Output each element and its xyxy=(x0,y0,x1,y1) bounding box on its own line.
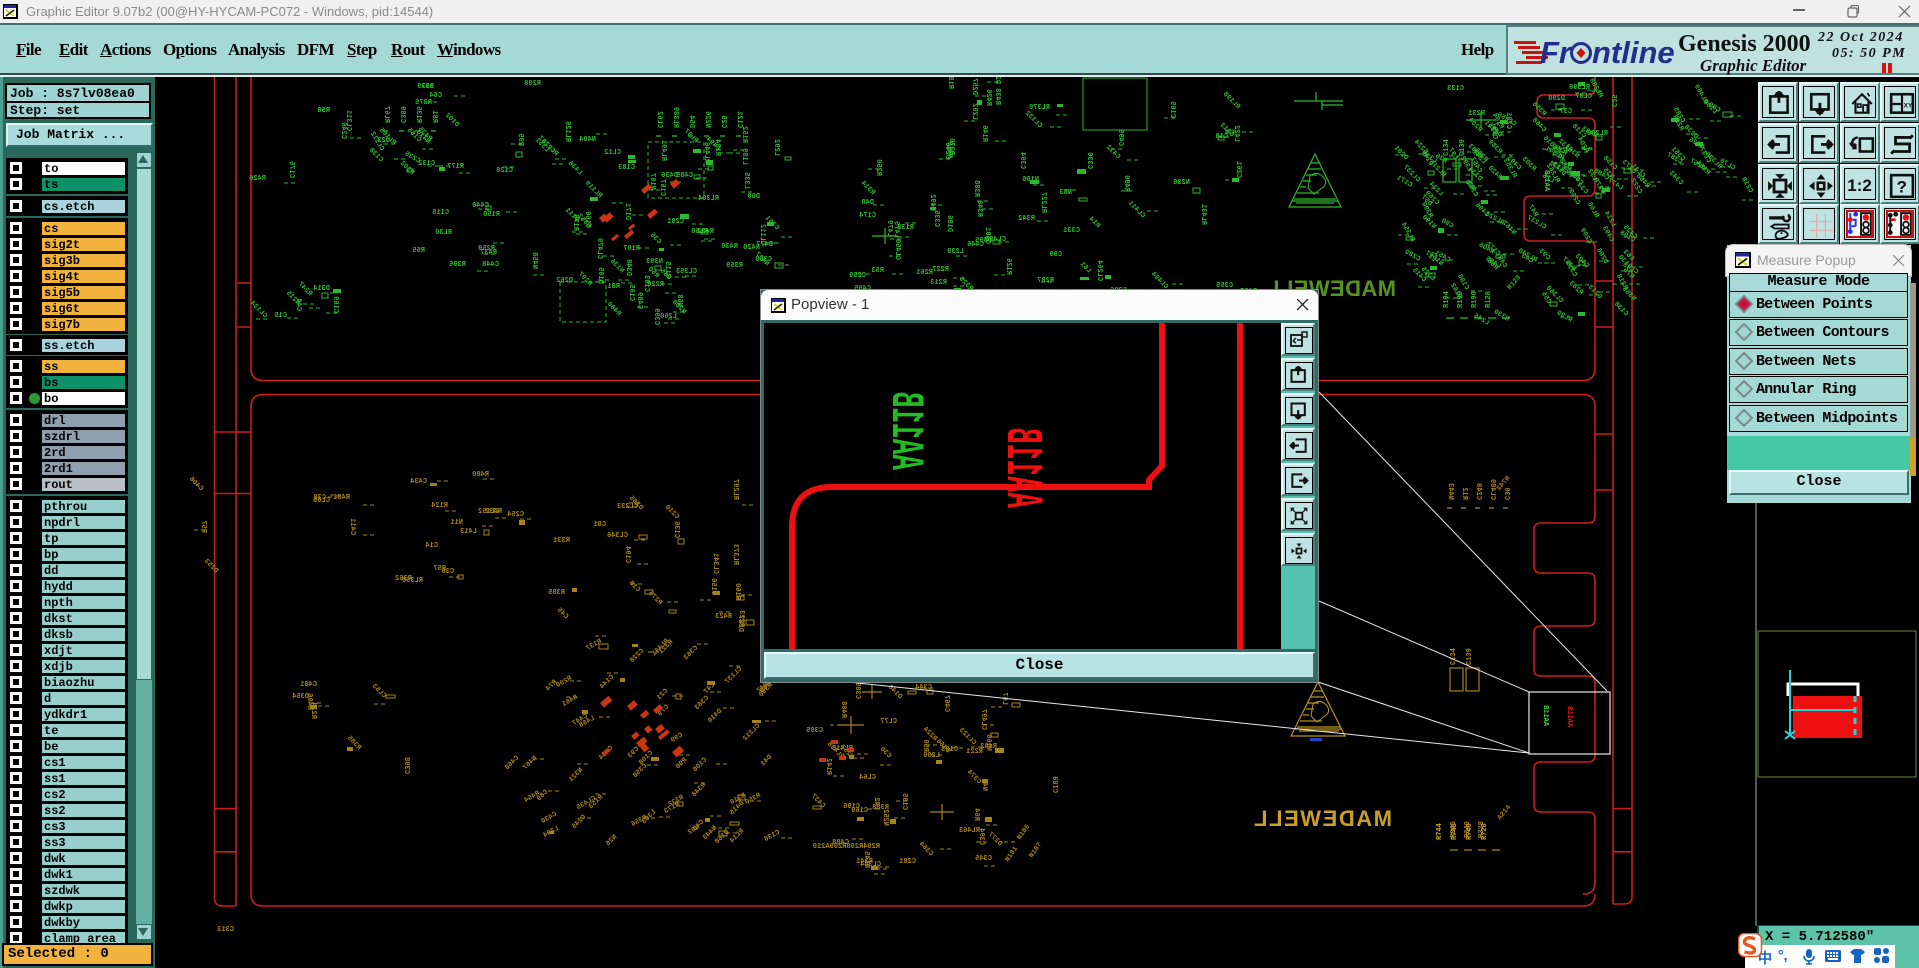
svg-text:L436: L436 xyxy=(566,160,584,178)
svg-text:XY: XY xyxy=(1904,102,1913,109)
svg-text:C37: C37 xyxy=(1559,108,1572,116)
svg-text:R437: R437 xyxy=(480,249,497,257)
svg-text:C93: C93 xyxy=(627,745,642,760)
svg-text:R47: R47 xyxy=(1526,204,1539,219)
svg-text:D277: D277 xyxy=(986,831,1004,849)
svg-text:R90: R90 xyxy=(675,756,690,771)
svg-text:R438: R438 xyxy=(993,88,1001,105)
svg-text:D262: D262 xyxy=(556,277,573,285)
svg-text:C144: C144 xyxy=(599,673,617,691)
svg-text:CL411: CL411 xyxy=(1126,200,1147,221)
svg-text:R107: R107 xyxy=(623,245,640,253)
svg-text:N393: N393 xyxy=(646,258,663,266)
svg-text:R359: R359 xyxy=(726,262,743,270)
svg-text:R432: R432 xyxy=(485,508,502,516)
svg-text:CL12: CL12 xyxy=(604,149,621,157)
svg-text:D48: D48 xyxy=(861,199,874,207)
svg-text:CL264: CL264 xyxy=(1095,260,1103,281)
svg-text:A214: A214 xyxy=(1496,804,1513,822)
svg-text:C196: C196 xyxy=(843,803,860,811)
svg-text:C134: C134 xyxy=(1450,648,1458,665)
svg-text:C281: C281 xyxy=(899,858,916,866)
svg-text:N187: N187 xyxy=(1028,841,1044,859)
svg-text:R124: R124 xyxy=(431,502,448,510)
svg-text:MADEWELL: MADEWELL xyxy=(1254,806,1392,831)
svg-text:C169: C169 xyxy=(331,296,339,313)
svg-text:R350: R350 xyxy=(744,792,763,807)
svg-text:C437: C437 xyxy=(809,793,827,811)
svg-text:C64: C64 xyxy=(429,92,442,100)
svg-text:R270: R270 xyxy=(947,138,955,155)
svg-text:R57: R57 xyxy=(199,520,207,533)
svg-text:N339: N339 xyxy=(1492,308,1511,323)
svg-text:R81: R81 xyxy=(430,110,438,123)
svg-text:R135: R135 xyxy=(414,106,422,123)
svg-text:R194: R194 xyxy=(1443,291,1451,308)
svg-text:N458: N458 xyxy=(530,252,538,269)
svg-text:C25: C25 xyxy=(719,115,727,128)
svg-text:C165: C165 xyxy=(1168,101,1176,118)
svg-text:C201: C201 xyxy=(1504,112,1512,129)
svg-text:R227: R227 xyxy=(932,266,949,274)
svg-text:C313: C313 xyxy=(217,926,234,934)
svg-text:C315: C315 xyxy=(1563,260,1578,279)
svg-text:RL66: RL66 xyxy=(1585,201,1600,220)
svg-text:N68: N68 xyxy=(675,294,683,307)
svg-text:C496: C496 xyxy=(1473,202,1491,220)
svg-text:CL311: CL311 xyxy=(344,110,352,131)
svg-text:CL69: CL69 xyxy=(313,497,330,505)
svg-text:D410: D410 xyxy=(707,707,725,725)
svg-text:Fr: Fr xyxy=(1540,35,1573,70)
svg-text:ntline: ntline xyxy=(1592,35,1675,70)
svg-text:R426: R426 xyxy=(984,89,992,106)
svg-text:RL259: RL259 xyxy=(1587,130,1608,138)
svg-text:R126: R126 xyxy=(1004,258,1012,275)
svg-text:D436: D436 xyxy=(661,172,678,180)
svg-text:L351: L351 xyxy=(533,137,551,155)
svg-text:C434: C434 xyxy=(410,478,427,486)
svg-text:R204R208R209A210: R204R208R209A210 xyxy=(813,843,880,851)
svg-text:R247: R247 xyxy=(296,281,314,299)
svg-text:N186: N186 xyxy=(1016,823,1032,841)
svg-text:C209: C209 xyxy=(1578,227,1593,246)
svg-text:R195: R195 xyxy=(1457,291,1465,308)
svg-text:N443: N443 xyxy=(1446,483,1454,500)
svg-text:D257: D257 xyxy=(970,78,978,95)
svg-text:R64: R64 xyxy=(972,808,980,821)
svg-text:C481: C481 xyxy=(300,681,317,689)
svg-text:R261: R261 xyxy=(916,269,933,277)
svg-text:CL450: CL450 xyxy=(893,239,901,260)
svg-text:N38: N38 xyxy=(1463,179,1478,194)
svg-text:C363: C363 xyxy=(683,644,701,662)
svg-text:R207: R207 xyxy=(1037,277,1054,285)
svg-text:AA11B: AA11B xyxy=(1542,169,1550,191)
svg-text:C14: C14 xyxy=(425,542,438,550)
svg-text:R74: R74 xyxy=(545,678,560,693)
svg-text:N226: N226 xyxy=(703,111,711,128)
svg-text:R481: R481 xyxy=(333,494,350,502)
svg-text:C330: C330 xyxy=(1085,152,1093,169)
svg-text:?: ? xyxy=(1897,179,1907,198)
svg-text:U23: U23 xyxy=(377,137,390,145)
svg-text:RL491: RL491 xyxy=(659,140,667,161)
svg-text:R745: R745 xyxy=(1451,823,1459,840)
svg-text:C495: C495 xyxy=(1116,129,1124,146)
svg-text:R241: R241 xyxy=(856,858,873,866)
svg-text:RL431: RL431 xyxy=(1199,204,1207,225)
svg-text:C139: C139 xyxy=(1466,648,1474,665)
svg-text:CL341: CL341 xyxy=(711,553,719,574)
svg-text:RL30: RL30 xyxy=(435,229,452,237)
svg-text:CL62: CL62 xyxy=(655,111,663,128)
svg-text:R303: R303 xyxy=(1520,156,1538,174)
svg-text:C254: C254 xyxy=(507,511,524,519)
svg-text:C468: C468 xyxy=(1530,117,1548,135)
svg-text:R348: R348 xyxy=(691,781,709,799)
svg-text:R408: R408 xyxy=(839,701,847,718)
svg-text:L206: L206 xyxy=(923,752,940,760)
svg-text:CL497: CL497 xyxy=(979,709,987,730)
svg-text:R208: R208 xyxy=(524,80,541,88)
svg-text:C468: C468 xyxy=(504,754,522,772)
svg-text:L479: L479 xyxy=(885,220,893,237)
svg-text:D54: D54 xyxy=(687,115,695,128)
svg-text:R342: R342 xyxy=(1018,215,1035,223)
svg-text:N494: N494 xyxy=(579,136,596,144)
svg-text:R314: R314 xyxy=(859,180,877,198)
svg-text:CL353: CL353 xyxy=(676,268,697,276)
svg-text:R422: R422 xyxy=(697,228,714,236)
svg-text:R173: R173 xyxy=(663,801,682,816)
svg-text:C343: C343 xyxy=(1667,170,1685,188)
svg-text:RL14: RL14 xyxy=(729,827,747,845)
svg-text:L214: L214 xyxy=(1602,210,1617,229)
svg-text:C185: C185 xyxy=(900,793,908,810)
svg-text:C45: C45 xyxy=(555,607,570,622)
svg-text:AA11B: AA11B xyxy=(1541,704,1549,726)
svg-text:C374: C374 xyxy=(965,769,983,787)
svg-text:C174: C174 xyxy=(859,212,876,220)
svg-text:L239: L239 xyxy=(947,248,964,256)
svg-text:RL126: RL126 xyxy=(563,121,571,142)
svg-text:R53: R53 xyxy=(871,267,884,275)
svg-text:R81: R81 xyxy=(607,283,620,291)
svg-text:C448: C448 xyxy=(482,261,499,269)
svg-text:R426: R426 xyxy=(249,175,266,183)
svg-text:R150: R150 xyxy=(483,211,500,219)
svg-text:C331: C331 xyxy=(1063,227,1080,235)
svg-text:C411: C411 xyxy=(348,518,356,535)
svg-text:C15: C15 xyxy=(274,312,287,320)
svg-text:R348: R348 xyxy=(975,200,983,217)
svg-text:R490: R490 xyxy=(1122,175,1130,192)
svg-text:CL132: CL132 xyxy=(1023,110,1044,131)
svg-text:R480: R480 xyxy=(605,301,623,319)
svg-text:CL212: CL212 xyxy=(742,722,763,743)
svg-text:R12: R12 xyxy=(1460,487,1468,500)
svg-text:C261: C261 xyxy=(1234,161,1242,178)
svg-text:CL137: CL137 xyxy=(724,665,745,686)
svg-text:C134: C134 xyxy=(1443,139,1451,156)
svg-text:RL304: RL304 xyxy=(698,195,719,203)
svg-text:C406: C406 xyxy=(187,476,205,494)
svg-text:R224: R224 xyxy=(309,702,317,719)
svg-text:R388: R388 xyxy=(972,180,980,197)
svg-text:N356: N356 xyxy=(630,814,649,829)
svg-text:C248: C248 xyxy=(1474,483,1482,500)
svg-text:C136: C136 xyxy=(763,829,782,844)
svg-text:C93: C93 xyxy=(1537,248,1552,263)
svg-text:C383: C383 xyxy=(694,694,712,712)
svg-text:C304: C304 xyxy=(1018,152,1026,169)
svg-text:C289: C289 xyxy=(1403,248,1422,263)
svg-text:C398: C398 xyxy=(402,757,410,774)
svg-text:C218: C218 xyxy=(1739,176,1754,195)
svg-text:C355: C355 xyxy=(1216,282,1233,290)
svg-text:C194: C194 xyxy=(623,546,631,563)
svg-text:C99: C99 xyxy=(670,732,685,745)
svg-text:D171: D171 xyxy=(623,203,631,220)
svg-text:R129: R129 xyxy=(1506,274,1523,292)
svg-text:R423: R423 xyxy=(715,613,732,621)
svg-text:AA11B: AA11B xyxy=(1565,705,1573,727)
svg-text:D348: D348 xyxy=(624,259,632,276)
svg-text:L413: L413 xyxy=(460,528,477,536)
svg-text:R213: R213 xyxy=(930,279,947,287)
svg-text:RL67: RL67 xyxy=(382,106,390,123)
svg-text:C245: C245 xyxy=(571,813,589,831)
svg-text:C175: C175 xyxy=(287,161,295,178)
svg-text:R461: R461 xyxy=(561,694,580,709)
svg-text:C430: C430 xyxy=(540,811,559,826)
svg-text:C189: C189 xyxy=(1053,776,1061,793)
svg-text:C305: C305 xyxy=(806,727,823,735)
svg-text:R190: R190 xyxy=(1471,291,1479,308)
svg-text:CL346: CL346 xyxy=(607,532,628,540)
svg-text:C18: C18 xyxy=(627,580,642,595)
svg-text:R223: R223 xyxy=(737,610,745,627)
svg-text:R50: R50 xyxy=(317,107,330,115)
svg-text:D102: D102 xyxy=(443,112,461,130)
svg-text:L335: L335 xyxy=(742,172,750,189)
svg-text:L292: L292 xyxy=(772,139,780,156)
svg-text:L61: L61 xyxy=(1078,261,1093,276)
svg-text:CL112: CL112 xyxy=(758,224,766,245)
svg-text:CL123: CL123 xyxy=(957,727,978,748)
svg-text:C121: C121 xyxy=(735,111,743,128)
svg-text:C201: C201 xyxy=(667,218,684,226)
svg-text:RL469: RL469 xyxy=(1692,83,1709,105)
svg-text:L260: L260 xyxy=(660,313,677,321)
svg-text:R744: R744 xyxy=(1436,823,1444,840)
svg-text:R297: R297 xyxy=(576,271,594,289)
svg-text:R375: R375 xyxy=(415,99,432,107)
svg-text:R331: R331 xyxy=(553,537,570,545)
svg-text:D201: D201 xyxy=(1392,145,1410,163)
svg-text:R480: R480 xyxy=(472,471,489,479)
svg-text:R385: R385 xyxy=(548,589,565,597)
svg-text:C25: C25 xyxy=(1609,94,1617,107)
svg-text:C128: C128 xyxy=(496,167,513,175)
svg-text:R50: R50 xyxy=(921,739,929,752)
svg-text:C36: C36 xyxy=(441,568,454,576)
svg-text:R65: R65 xyxy=(412,247,425,255)
svg-text:RL227: RL227 xyxy=(1039,192,1047,213)
svg-text:D105: D105 xyxy=(596,267,604,284)
svg-text:C228: C228 xyxy=(629,647,647,665)
svg-text:R389: R389 xyxy=(1486,139,1504,157)
svg-text:C105: C105 xyxy=(627,284,635,301)
svg-text:R430: R430 xyxy=(721,243,738,251)
svg-text:CL470: CL470 xyxy=(595,238,603,259)
svg-text:R137: R137 xyxy=(585,638,604,653)
svg-text:C136: C136 xyxy=(672,521,680,538)
svg-text:AA11B: AA11B xyxy=(992,428,1050,508)
svg-text:R177: R177 xyxy=(447,163,464,171)
svg-text:N321: N321 xyxy=(568,766,586,784)
svg-text:C138: C138 xyxy=(1612,301,1630,319)
svg-text:RL370: RL370 xyxy=(1029,104,1050,112)
svg-text:R728: R728 xyxy=(1481,823,1489,840)
svg-text:D60: D60 xyxy=(747,193,760,201)
svg-text:D41: D41 xyxy=(760,753,775,768)
svg-text:R283: R283 xyxy=(1567,280,1585,298)
svg-text:C399: C399 xyxy=(652,308,660,325)
svg-text:R128: R128 xyxy=(1485,291,1493,308)
svg-text:D206: D206 xyxy=(1594,247,1609,266)
svg-text:R250: R250 xyxy=(874,159,882,176)
svg-text:N230: N230 xyxy=(1173,179,1190,187)
svg-text:C409: C409 xyxy=(635,292,643,309)
svg-text:N136: N136 xyxy=(608,258,626,276)
svg-text:C389: C389 xyxy=(398,106,406,123)
svg-text:N160: N160 xyxy=(984,734,992,751)
svg-text:C467: C467 xyxy=(942,695,950,712)
svg-text:R231: R231 xyxy=(1468,110,1485,118)
svg-text:R454: R454 xyxy=(523,790,542,805)
svg-text:C133: C133 xyxy=(1447,85,1464,93)
svg-text:N26: N26 xyxy=(605,833,620,848)
svg-text:R221: R221 xyxy=(966,748,983,756)
svg-text:R152: R152 xyxy=(740,126,748,143)
svg-text:CL53: CL53 xyxy=(370,683,388,701)
svg-text:RL389: RL389 xyxy=(671,107,679,128)
svg-text:C21: C21 xyxy=(656,687,671,702)
svg-text:CL494: CL494 xyxy=(1149,271,1170,292)
svg-text:R115: R115 xyxy=(663,261,671,278)
svg-text:R226: R226 xyxy=(647,281,664,289)
svg-text:C35: C35 xyxy=(648,232,663,247)
svg-text:CL87: CL87 xyxy=(1575,93,1592,101)
svg-text:C30: C30 xyxy=(878,746,893,761)
svg-text:C106: C106 xyxy=(692,756,710,774)
svg-text:C401: C401 xyxy=(983,227,991,244)
svg-text:L189: L189 xyxy=(740,148,748,165)
svg-text:RL198: RL198 xyxy=(1221,91,1242,112)
svg-text:R14: R14 xyxy=(1087,216,1102,231)
svg-text:N181: N181 xyxy=(1004,845,1020,863)
svg-text:C259: C259 xyxy=(849,272,866,280)
svg-text:D314: D314 xyxy=(313,285,330,293)
svg-text:C364: C364 xyxy=(917,841,935,859)
svg-text:D186: D186 xyxy=(945,215,953,232)
svg-text:C99: C99 xyxy=(1049,251,1062,259)
svg-text:R740: R740 xyxy=(1466,823,1474,840)
svg-text:C44: C44 xyxy=(294,298,302,311)
svg-text:C139: C139 xyxy=(1459,139,1467,156)
svg-text:D298: D298 xyxy=(1548,95,1565,103)
svg-text:RL297: RL297 xyxy=(731,479,739,500)
svg-text:RL446: RL446 xyxy=(702,142,710,163)
svg-text:C167: C167 xyxy=(658,179,666,196)
svg-text:C81: C81 xyxy=(593,521,606,529)
svg-text:CL64: CL64 xyxy=(859,774,876,782)
svg-text:RL463: RL463 xyxy=(959,827,980,835)
svg-text:R146: R146 xyxy=(980,125,988,142)
svg-text:CL77: CL77 xyxy=(880,718,897,726)
svg-text:N252: N252 xyxy=(881,809,889,826)
svg-text:D253: D253 xyxy=(202,558,220,576)
svg-text:C210: C210 xyxy=(663,504,681,522)
svg-text:R275: R275 xyxy=(646,590,664,608)
svg-text:RL373: RL373 xyxy=(731,544,739,565)
svg-text:C115: C115 xyxy=(432,209,449,217)
svg-text:N467: N467 xyxy=(522,754,540,772)
svg-text:AA11B: AA11B xyxy=(878,392,931,470)
svg-text:C389: C389 xyxy=(853,682,861,699)
svg-text:C183: C183 xyxy=(618,164,635,172)
svg-text:C345: C345 xyxy=(975,855,992,863)
svg-text:R395: R395 xyxy=(449,261,466,269)
svg-text:D57: D57 xyxy=(421,83,434,91)
svg-text:C267: C267 xyxy=(1490,122,1498,139)
svg-text:C226: C226 xyxy=(1687,136,1706,151)
svg-text:L246: L246 xyxy=(1472,312,1491,327)
svg-text:L292: L292 xyxy=(970,103,978,120)
svg-text:C335: C335 xyxy=(932,210,940,227)
svg-text:R362: R362 xyxy=(395,575,412,583)
svg-text:N11: N11 xyxy=(450,519,463,527)
svg-text:C358: C358 xyxy=(632,762,650,780)
svg-text:R420: R420 xyxy=(743,244,760,252)
svg-text:CL489: CL489 xyxy=(1488,479,1496,500)
